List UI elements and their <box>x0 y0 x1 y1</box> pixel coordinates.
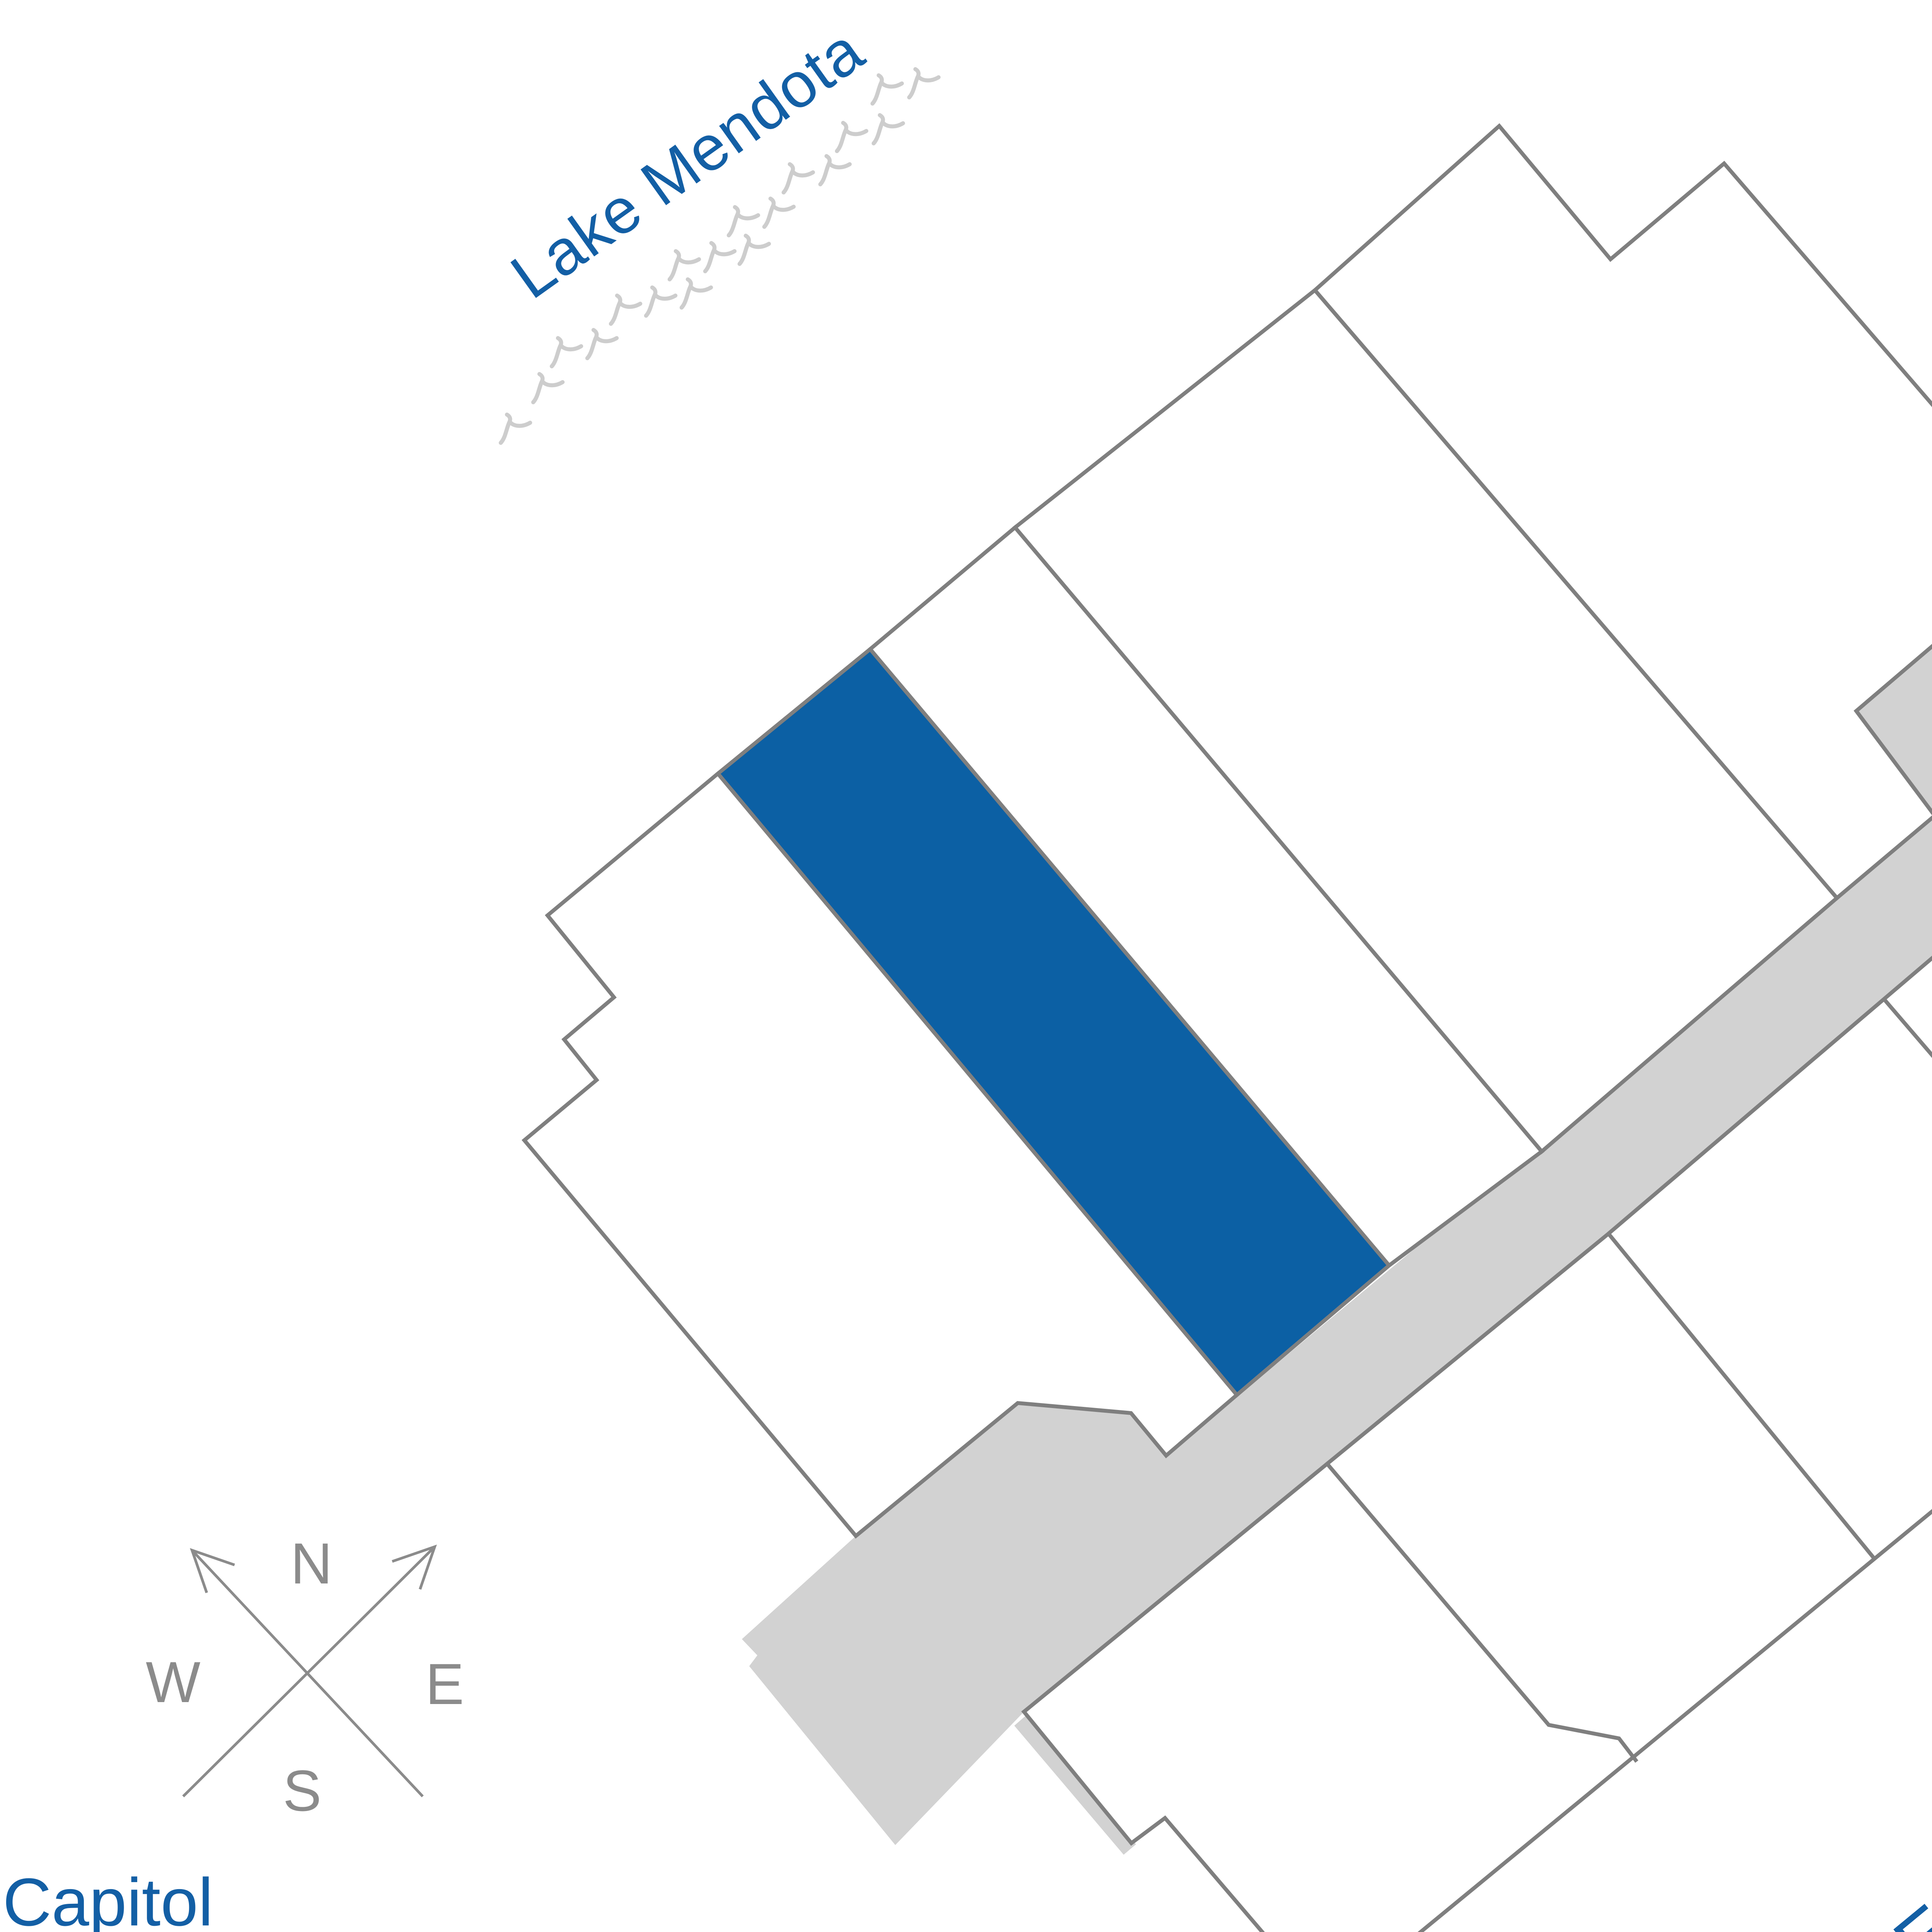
svg-text:S: S <box>283 1758 321 1823</box>
svg-text:E: E <box>425 1651 464 1716</box>
svg-text:Lake Mendota: Lake Mendota <box>498 14 876 312</box>
svg-text:Capitol: Capitol <box>3 1865 213 1932</box>
svg-text:W: W <box>146 1650 201 1714</box>
svg-text:N: N <box>291 1531 332 1596</box>
